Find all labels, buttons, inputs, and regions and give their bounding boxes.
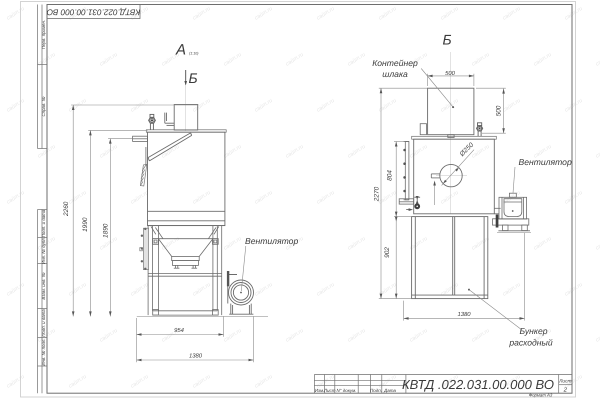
svg-text:N° докум.: N° докум. (337, 388, 357, 393)
svg-text:Инв. № дубл.: Инв. № дубл. (41, 237, 46, 264)
svg-text:Лист: Лист (558, 379, 571, 385)
svg-text:Дата: Дата (383, 388, 396, 393)
svg-text:Контейнер: Контейнер (372, 58, 418, 68)
svg-text:Перв. примен.: Перв. примен. (41, 20, 46, 49)
svg-text:(1:10): (1:10) (189, 52, 198, 56)
svg-text:1890: 1890 (102, 223, 109, 238)
svg-text:1380: 1380 (457, 311, 471, 318)
svg-text:Б: Б (443, 32, 452, 48)
svg-text:расходный: расходный (508, 338, 552, 348)
svg-text:шлака: шлака (382, 69, 408, 79)
svg-text:Изм.: Изм. (315, 388, 325, 393)
svg-text:КВТД .022.031.00.000 ВО: КВТД .022.031.00.000 ВО (402, 377, 554, 392)
svg-text:Вентилятор: Вентилятор (245, 236, 298, 246)
svg-text:2: 2 (563, 387, 568, 394)
svg-text:Формат А3: Формат А3 (529, 392, 553, 397)
svg-text:А: А (175, 42, 186, 59)
svg-text:2260: 2260 (63, 201, 70, 217)
svg-text:Инв. № подл.: Инв. № подл. (41, 338, 46, 365)
svg-text:КВТД.022.031.00.000 ВО: КВТД.022.031.00.000 ВО (46, 7, 140, 16)
svg-text:Подп. и дата: Подп. и дата (41, 209, 46, 237)
svg-text:Подп. и дата: Подп. и дата (41, 309, 46, 337)
svg-text:Справ. №: Справ. № (41, 96, 46, 116)
svg-text:954: 954 (174, 327, 185, 334)
svg-text:1990: 1990 (82, 217, 89, 232)
svg-text:804: 804 (387, 170, 394, 181)
svg-text:Лист: Лист (323, 388, 336, 393)
svg-text:Вентилятор: Вентилятор (519, 157, 572, 167)
svg-text:902: 902 (384, 247, 391, 258)
svg-text:500: 500 (496, 105, 503, 116)
svg-text:Б: Б (189, 70, 198, 86)
svg-text:500: 500 (445, 70, 456, 77)
svg-text:Подп.: Подп. (370, 388, 382, 393)
svg-text:Взам. инв. №: Взам. инв. № (41, 272, 46, 299)
svg-text:Бункер: Бункер (519, 326, 547, 336)
svg-text:1380: 1380 (189, 353, 203, 360)
svg-text:2270: 2270 (373, 186, 380, 202)
